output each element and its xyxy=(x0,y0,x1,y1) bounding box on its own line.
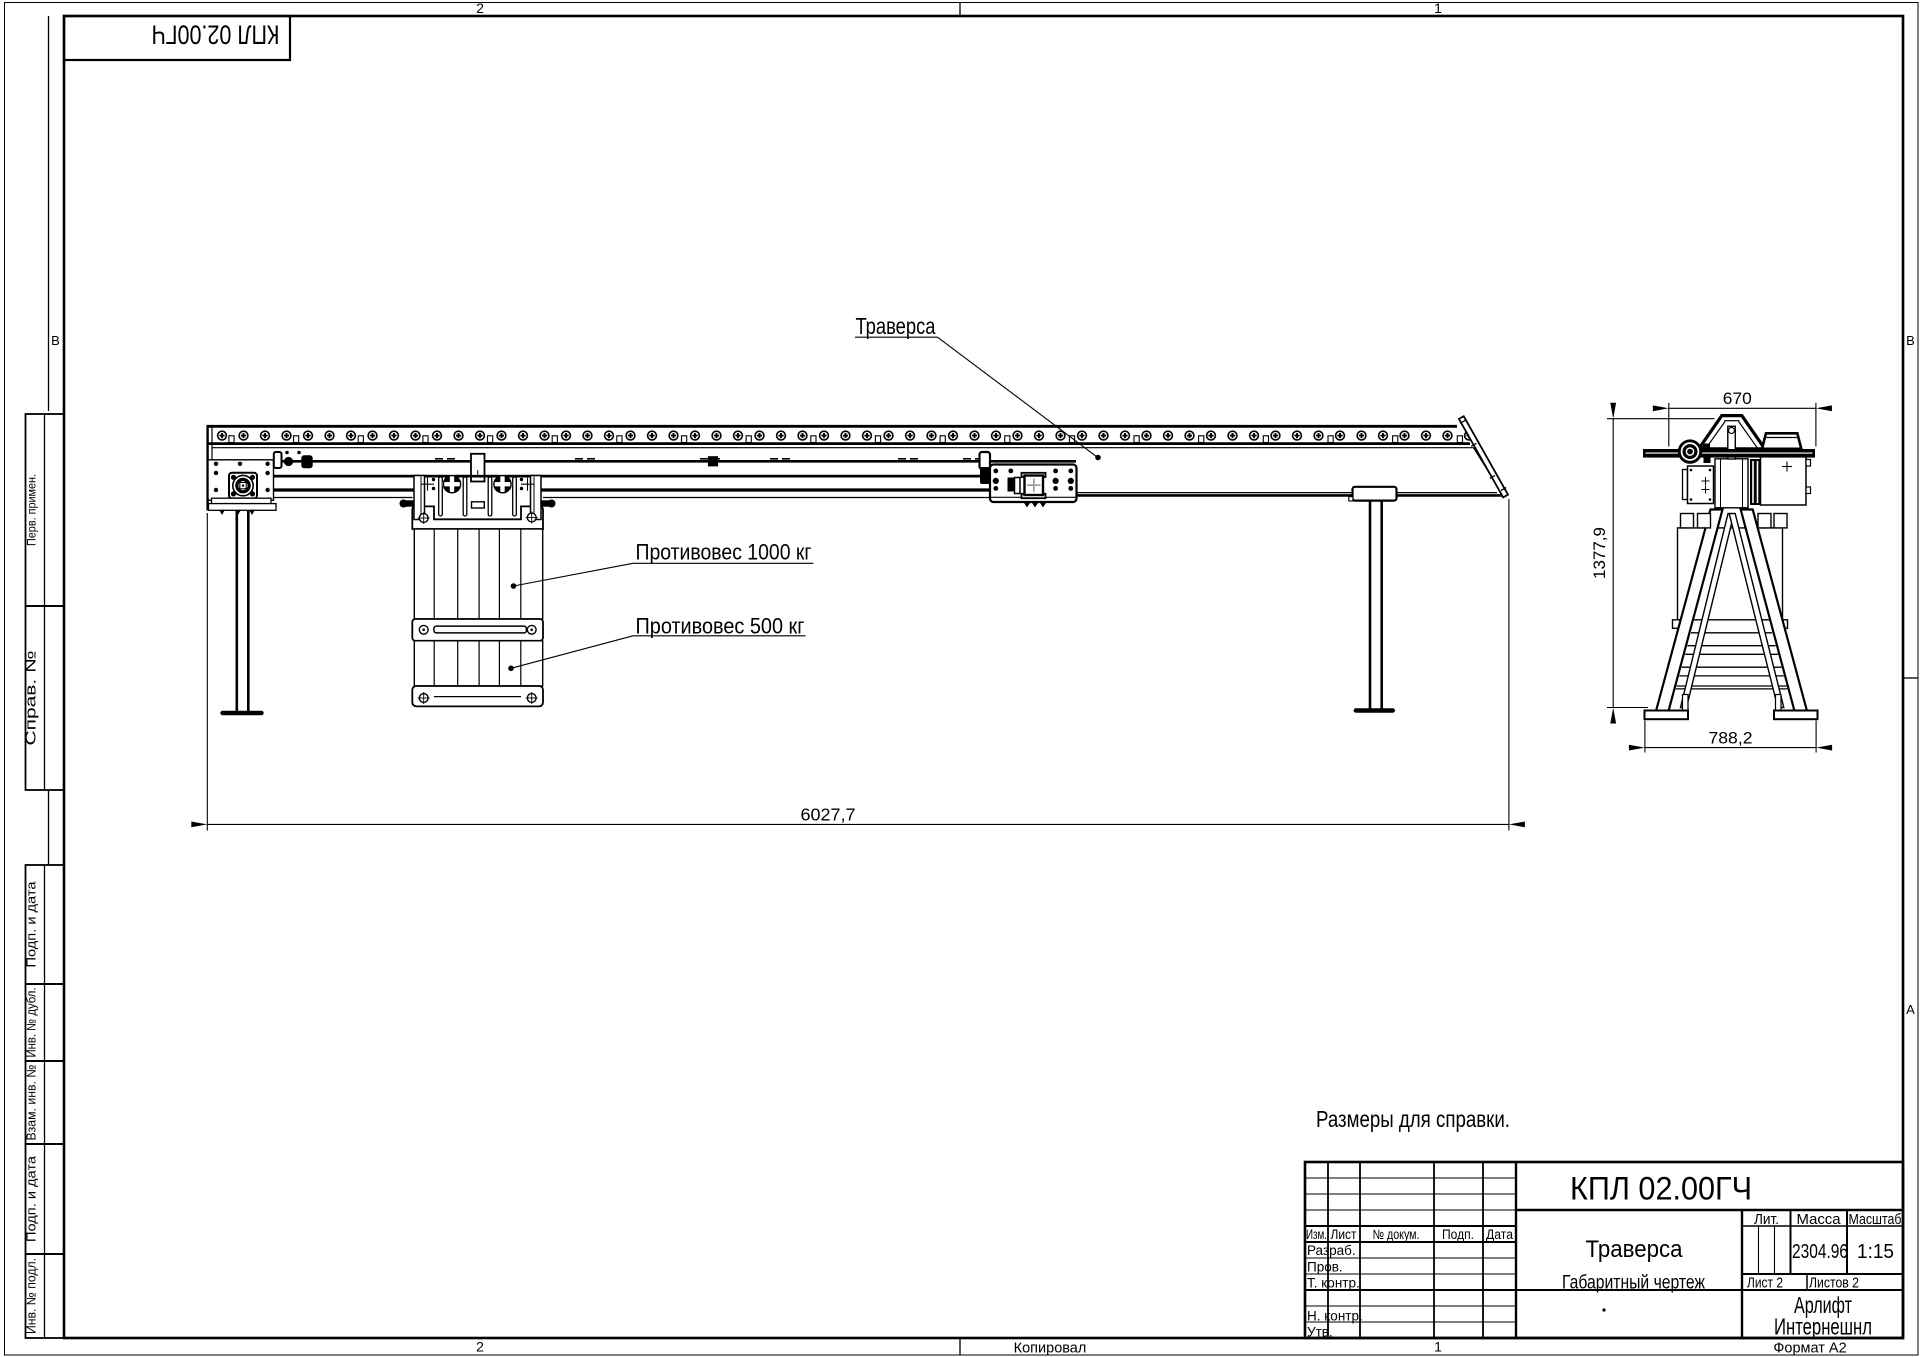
svg-text:Интернешнл: Интернешнл xyxy=(1774,1314,1872,1340)
svg-text:Масштаб: Масштаб xyxy=(1849,1212,1902,1228)
svg-text:Противовес 1000 кг: Противовес 1000 кг xyxy=(636,540,812,565)
svg-text:670: 670 xyxy=(1723,390,1752,408)
svg-text:Противовес 500 кг: Противовес 500 кг xyxy=(636,613,805,638)
svg-text:Инв. № дубл.: Инв. № дубл. xyxy=(25,988,39,1058)
svg-text:Траверса: Траверса xyxy=(1586,1236,1684,1263)
svg-text:2: 2 xyxy=(476,0,484,16)
svg-text:B: B xyxy=(1906,333,1915,348)
svg-text:Габаритный чертеж: Габаритный чертеж xyxy=(1562,1273,1705,1294)
svg-text:6027,7: 6027,7 xyxy=(801,805,856,825)
svg-text:Разраб.: Разраб. xyxy=(1307,1243,1356,1258)
svg-text:2: 2 xyxy=(476,1339,484,1355)
svg-text:Масса: Масса xyxy=(1797,1212,1842,1228)
svg-text:Инв. № подл.: Инв. № подл. xyxy=(25,1258,39,1334)
svg-text:Подп. и дата: Подп. и дата xyxy=(24,1155,39,1242)
svg-text:Перв. примен.: Перв. примен. xyxy=(25,474,39,546)
svg-text:Подп. и дата: Подп. и дата xyxy=(24,881,39,968)
svg-text:Подп.: Подп. xyxy=(1442,1227,1474,1242)
svg-text:Утв.: Утв. xyxy=(1307,1325,1333,1340)
svg-text:1377,9: 1377,9 xyxy=(1591,527,1609,579)
svg-text:Траверса: Траверса xyxy=(856,313,936,339)
svg-text:2304.96: 2304.96 xyxy=(1792,1240,1848,1263)
svg-text:Н. контр.: Н. контр. xyxy=(1307,1309,1363,1324)
svg-text:Лит.: Лит. xyxy=(1754,1212,1779,1228)
svg-text:Лист: Лист xyxy=(1331,1227,1357,1242)
svg-text:Листов 2: Листов 2 xyxy=(1809,1276,1859,1292)
svg-text:КПЛ 02.00ГЧ: КПЛ 02.00ГЧ xyxy=(152,20,280,50)
svg-text:КПЛ 02.00ГЧ: КПЛ 02.00ГЧ xyxy=(1570,1171,1752,1207)
svg-text:1: 1 xyxy=(1434,1339,1442,1355)
svg-text:Т. контр.: Т. контр. xyxy=(1307,1276,1360,1291)
svg-text:1: 1 xyxy=(1434,0,1442,16)
svg-text:Копировал: Копировал xyxy=(1014,1341,1087,1357)
svg-text:Формат А2: Формат А2 xyxy=(1773,1341,1846,1357)
svg-text:A: A xyxy=(1906,1002,1915,1017)
svg-text:№ докум.: № докум. xyxy=(1373,1227,1420,1242)
svg-text:Размеры для справки.: Размеры для справки. xyxy=(1316,1106,1510,1132)
svg-text:788,2: 788,2 xyxy=(1709,730,1753,748)
svg-text:Дата: Дата xyxy=(1486,1227,1513,1242)
svg-text:Изм.: Изм. xyxy=(1306,1227,1327,1242)
svg-text:Лист 2: Лист 2 xyxy=(1747,1276,1783,1292)
svg-text:Взам. инв. №: Взам. инв. № xyxy=(25,1065,39,1141)
svg-text:B: B xyxy=(51,333,60,348)
svg-text:1:15: 1:15 xyxy=(1857,1240,1894,1263)
svg-text:Пров.: Пров. xyxy=(1307,1260,1343,1275)
svg-text:Справ. №: Справ. № xyxy=(24,651,40,746)
